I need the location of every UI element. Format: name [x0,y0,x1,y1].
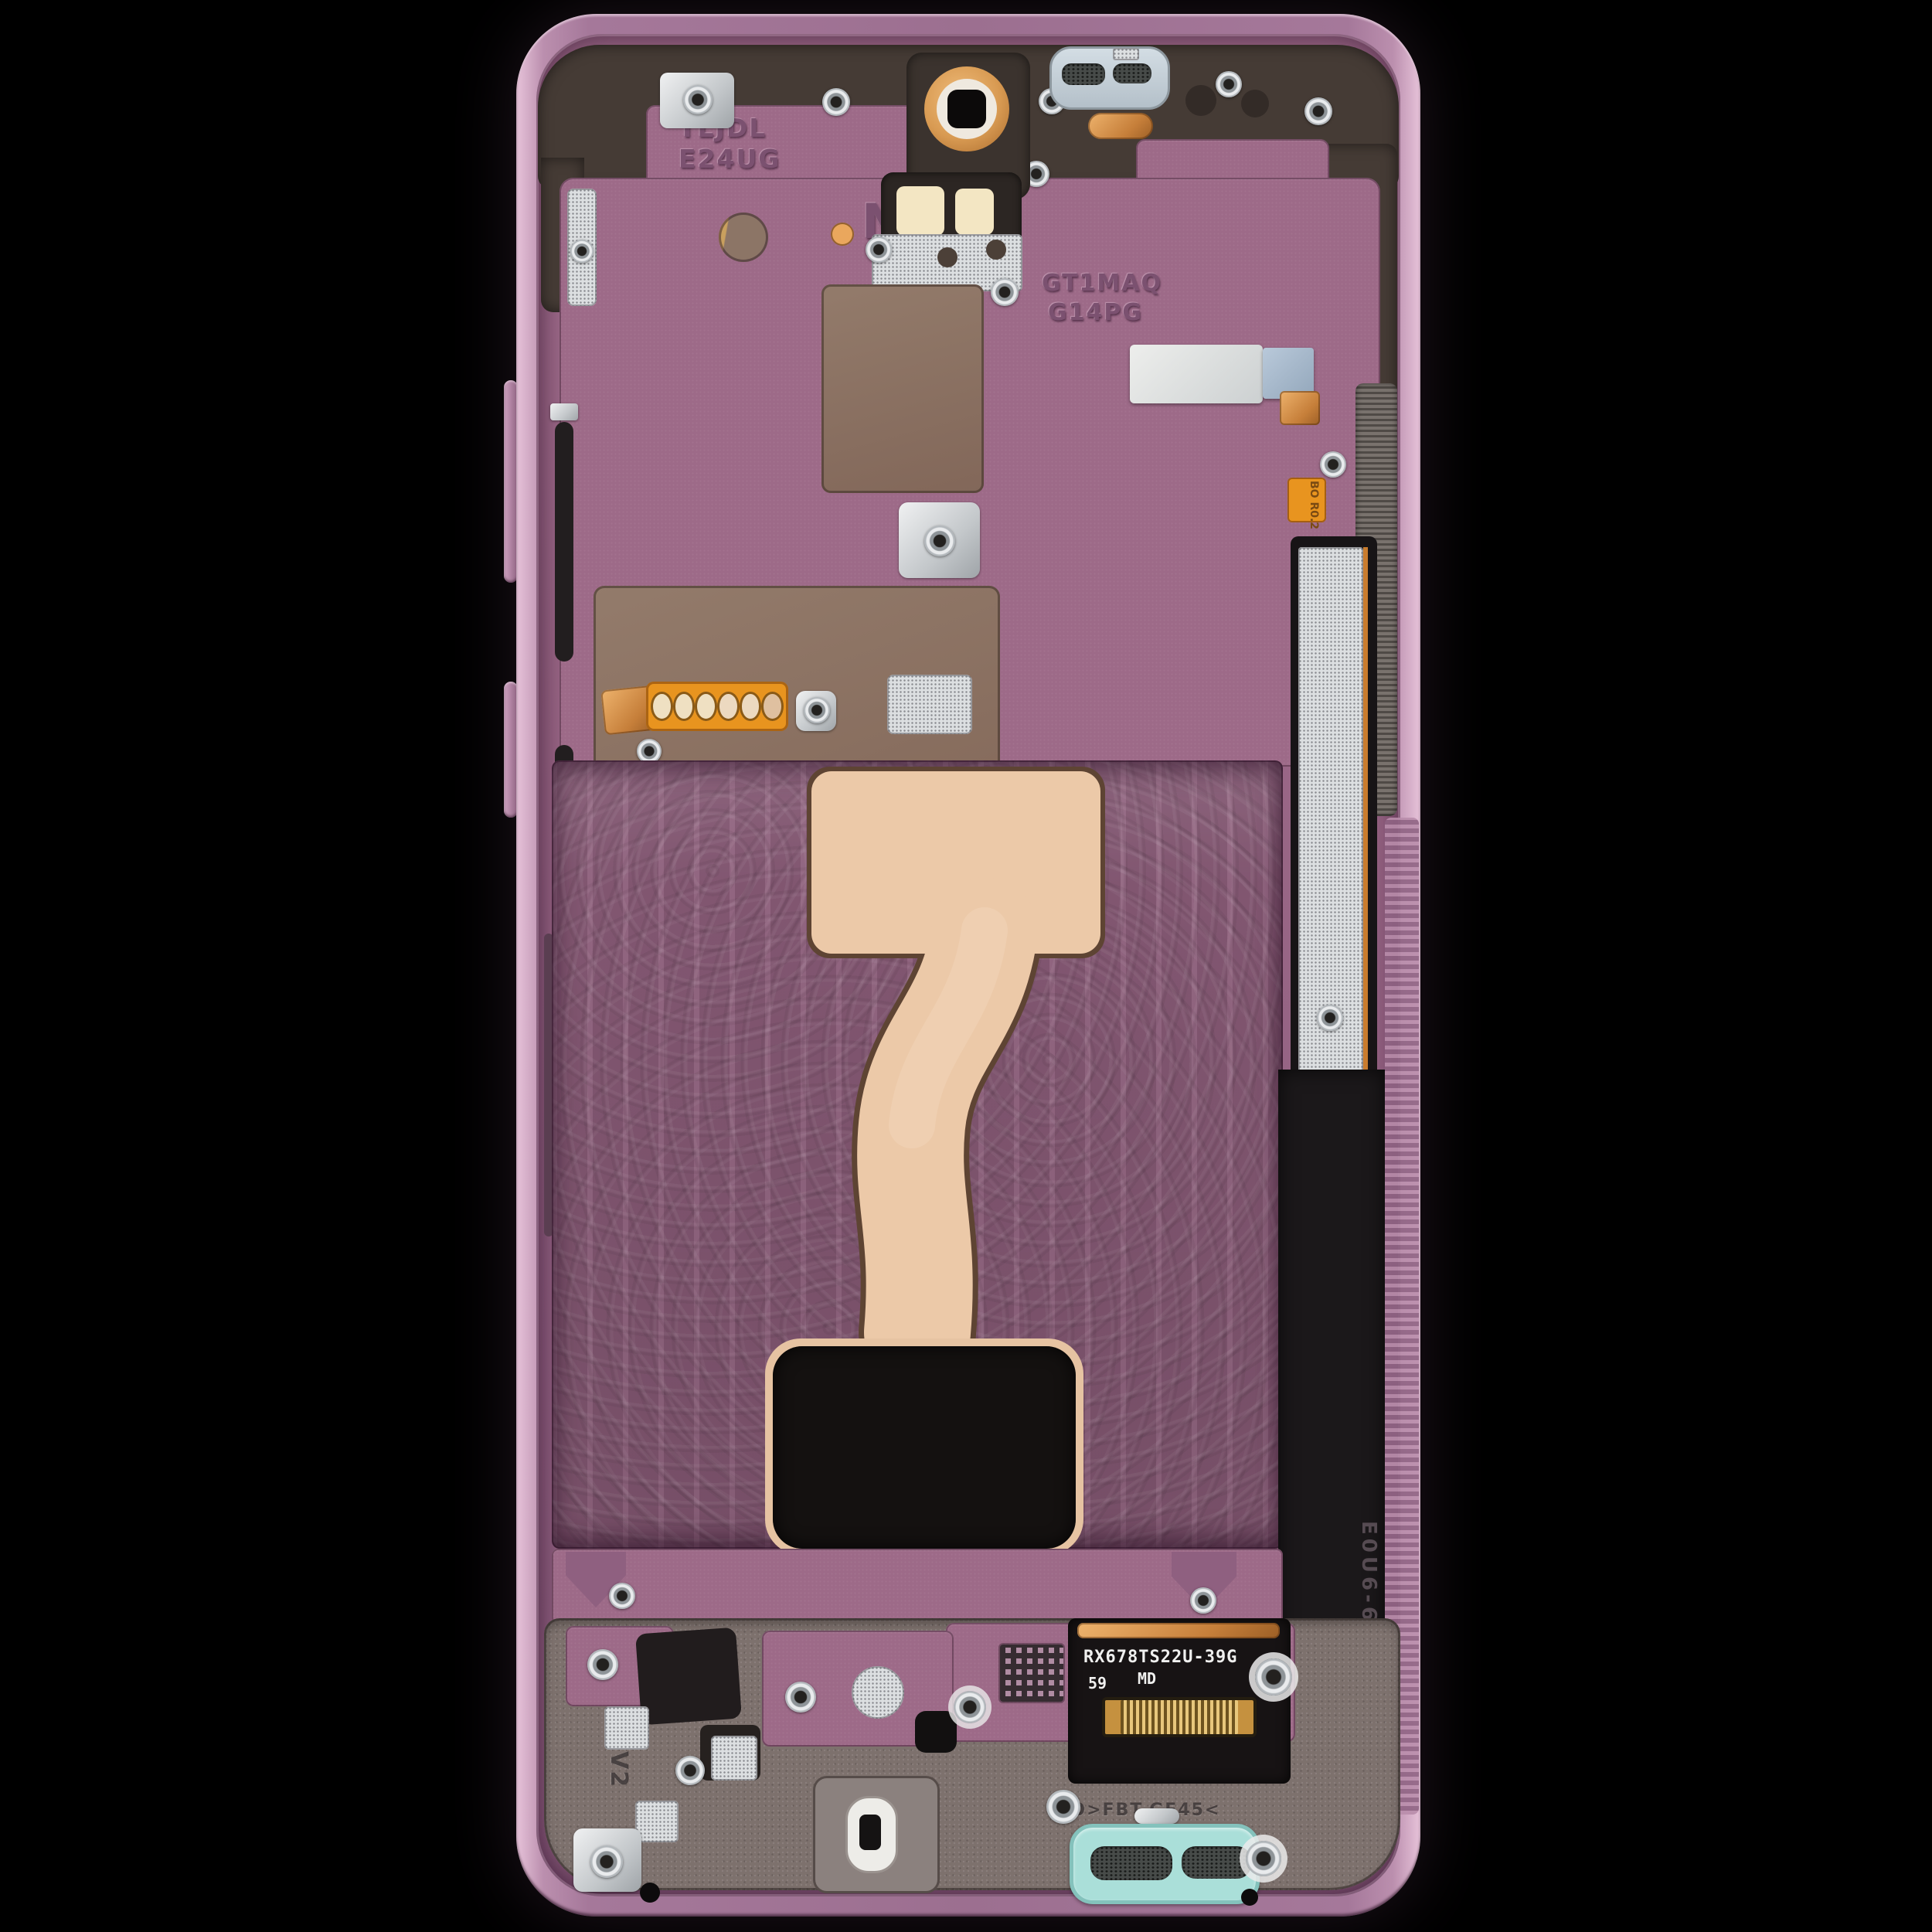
flex-contact-pad [761,692,784,721]
earpiece-mesh-right [1113,63,1151,83]
board-connector [1102,1697,1257,1737]
flex-label-model: RX678TS22U-39G [1083,1648,1237,1667]
flex-copper-edge [1077,1623,1280,1638]
screw [1216,71,1242,97]
mic-mesh-round [852,1666,904,1719]
earpiece-mesh-left [1062,63,1105,85]
screw [822,88,850,116]
screw [587,1649,618,1680]
data-matrix-code [1000,1645,1063,1702]
rubber-foot [640,1883,660,1903]
screw [785,1682,816,1713]
screw [1317,1005,1343,1031]
screw [1246,1841,1281,1876]
flash-window [896,186,944,236]
screw [1320,451,1346,478]
engraving-mid-line1: GT1MAQ [1042,269,1162,298]
emi-square [711,1736,757,1781]
main-flex-label-sticker: RX678TS22U-39G 59 MD [1068,1618,1291,1784]
flash-window [955,189,994,235]
screw [1255,1658,1292,1696]
stiffener-copper-line [1363,547,1368,1085]
screw [954,1691,986,1723]
emi-square [635,1801,679,1842]
screw [570,240,594,263]
sensor-hole [1185,85,1216,116]
rubber-damper [635,1628,742,1726]
screw [924,526,955,556]
charge-port-opening [859,1815,881,1850]
shield-hole [937,247,957,267]
flex-contact-pad [740,692,762,721]
side-key-flex-code: BO R0.2 [1308,481,1320,529]
side-button-slot [555,422,573,662]
front-camera-lens [947,90,986,128]
flex-tab-gold [1280,391,1320,425]
sensor-hole [1241,90,1269,117]
shielding-can-small [821,284,984,493]
flex-contact-pad [695,692,717,721]
engraving-mid-line2: G14PG [1042,298,1162,328]
screw [590,1845,623,1878]
engraving-right-vertical-1: E0U6-6 [1357,1521,1380,1624]
screw [1190,1587,1216,1614]
thermal-sticker-white [1130,345,1263,403]
phone-midframe: TLJDL E24UG N GT1MAQ G14PG BO R0.2 [516,14,1420,1917]
flex-contact-pad [717,692,740,721]
earpiece-contact-pad [1088,113,1153,139]
screw [675,1756,705,1785]
screw [866,236,892,263]
adhesive-pad-black [773,1346,1076,1549]
flex-contact-pad [673,692,696,721]
loudspeaker-gasket [1070,1824,1260,1904]
screw [609,1583,635,1609]
rubber-foot [1241,1889,1258,1906]
side-key-flex [1287,478,1326,522]
antenna-mesh-sticker [1113,48,1139,60]
speaker-bracket-pill [1134,1808,1179,1824]
flex-label-num: 59 [1088,1674,1107,1692]
screw [683,85,713,114]
screw [1046,1790,1080,1824]
engraving-mid-code: GT1MAQ G14PG [1042,269,1162,328]
shield-hole [986,240,1006,260]
speaker-mesh-left [1090,1846,1172,1880]
speaker-mesh-right [1182,1846,1251,1879]
flex-label-md: MD [1138,1669,1156,1688]
flex-contact-pad [651,692,673,721]
emi-square [604,1706,649,1750]
photo-canvas: { "subject_markings": { "chip_line1": "T… [0,0,1932,1932]
screw [991,278,1019,306]
engraving-chip-line2: E24UG [679,144,781,175]
engraving-v2: V2 [605,1751,632,1788]
volume-flex [646,682,788,731]
slot-bracket [550,403,578,420]
screw [1304,97,1332,125]
emi-mesh-patch-center [887,675,972,734]
port-hole [915,1711,957,1753]
mic-hole-ring [719,213,768,262]
screw [804,697,830,723]
contact-dot [831,223,854,246]
